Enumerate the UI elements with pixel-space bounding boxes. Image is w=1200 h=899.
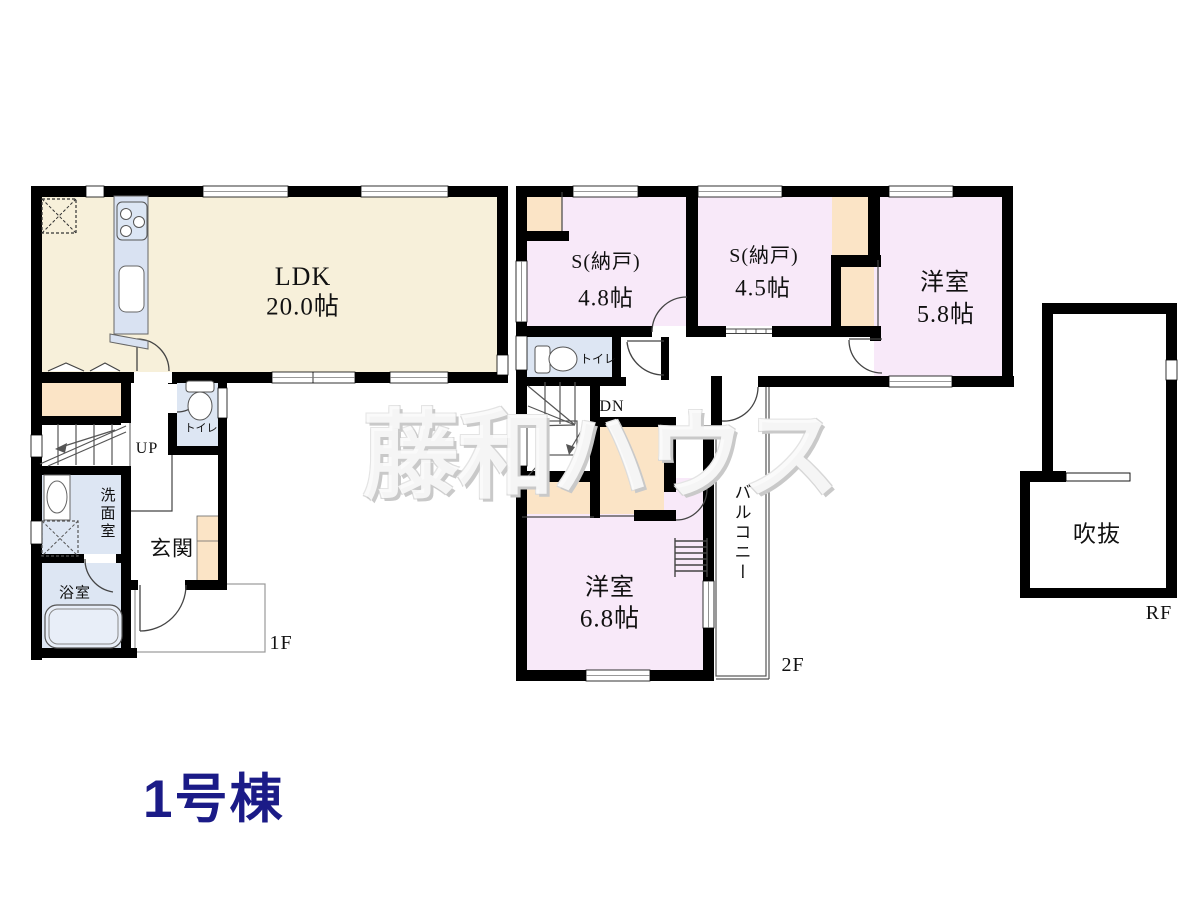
wall: [1042, 303, 1177, 314]
toilet-tank-icon: [535, 346, 550, 373]
washroom-label: 洗面室: [99, 487, 114, 541]
porch-outline: [135, 584, 265, 652]
wall: [497, 186, 508, 383]
toilet-tank-icon: [186, 381, 214, 392]
wall: [686, 186, 698, 337]
window: [31, 521, 42, 544]
entrance-label: 玄関: [150, 539, 194, 560]
sliding-door: [726, 326, 772, 337]
window: [86, 186, 104, 197]
stove-burner-icon: [121, 226, 132, 237]
window: [31, 435, 42, 457]
roof-tag: RF: [1146, 603, 1172, 623]
door-opening: [134, 372, 172, 383]
stair-arrow-icon: [55, 443, 67, 453]
wall: [1020, 471, 1030, 598]
storage-b-closet-lower-fill: [839, 260, 879, 332]
ldk-room-fill: [36, 190, 498, 378]
wall: [1166, 303, 1177, 598]
stairs-1f: [40, 424, 126, 466]
door-opening: [138, 580, 185, 590]
storage-b-closet-upper-fill: [832, 192, 872, 259]
window: [1066, 473, 1130, 481]
door-opening: [84, 554, 116, 563]
stove-burner-icon: [134, 217, 145, 228]
wall: [121, 372, 131, 658]
entrance-step-line: [131, 455, 172, 511]
toilet-2f-label: トイレ: [580, 353, 616, 365]
window: [218, 388, 227, 418]
door-arc-toilet-2f: [627, 342, 664, 375]
wall: [516, 231, 569, 241]
stair-break-line: [40, 426, 126, 464]
toilet-1f-label: トイレ: [185, 424, 218, 435]
window: [1166, 360, 1177, 380]
wall: [1042, 303, 1053, 481]
storage-a-name: S(納戸): [571, 252, 640, 272]
closet-1f-fill: [38, 377, 124, 421]
roof-walls: [1020, 303, 1177, 598]
wall: [696, 326, 728, 337]
balcony-label: バルコニー: [733, 483, 750, 583]
toilet-bowl-icon: [549, 347, 577, 371]
door-opening: [168, 384, 177, 413]
void-label: 吹抜: [1073, 523, 1121, 546]
ldk-room-size: 20.0帖: [266, 295, 340, 320]
building-title: 1号棟: [143, 757, 284, 833]
door-opening: [652, 326, 686, 337]
western-a-size: 5.8帖: [917, 303, 975, 327]
wall: [772, 326, 881, 337]
wall: [1020, 588, 1177, 598]
wall: [31, 466, 131, 475]
floor1-tag: 1F: [269, 633, 292, 653]
stairs-down-label: DN: [599, 399, 624, 415]
washbasin-icon: [47, 481, 67, 513]
storage-a-size: 4.8帖: [578, 287, 634, 310]
window: [497, 355, 508, 375]
stair-direction-line: [58, 430, 115, 448]
wall: [31, 416, 131, 425]
western-b-name: 洋室: [585, 576, 635, 600]
bathtub-icon: [45, 605, 122, 648]
bathroom-label: 浴室: [59, 587, 91, 602]
toilet-bowl-icon: [188, 392, 212, 420]
floorplan-page: LDK 20.0帖 玄関 洗面室 浴室 トイレ UP 1F S(納戸) 4.8帖…: [0, 0, 1200, 899]
western-b-size: 6.8帖: [580, 607, 640, 632]
window: [516, 336, 527, 370]
storage-a-closet-fill: [524, 192, 562, 234]
stairs-up-label: UP: [136, 441, 158, 457]
wall: [831, 255, 841, 337]
western-a-name: 洋室: [920, 271, 970, 295]
stove-burner-icon: [121, 209, 132, 220]
storage-b-name: S(納戸): [729, 246, 798, 266]
floor2-tag: 2F: [781, 655, 804, 675]
wall: [868, 186, 880, 267]
wall: [1002, 186, 1013, 387]
storage-b-size: 4.5帖: [735, 277, 791, 300]
kitchen-sink-icon: [119, 266, 144, 312]
shoe-cabinet: [197, 516, 219, 582]
ldk-room-name: LDK: [275, 264, 331, 290]
